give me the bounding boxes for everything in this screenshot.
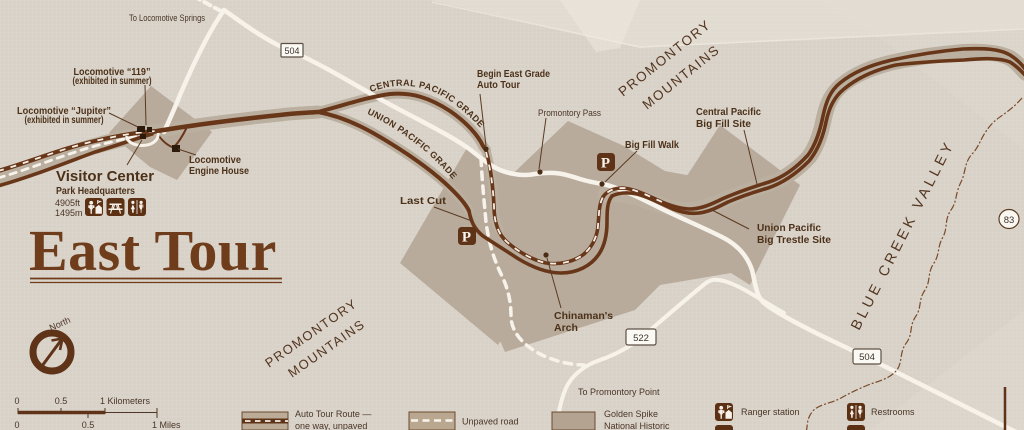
svg-text:Big Fill Site: Big Fill Site [696, 118, 751, 130]
svg-text:Park Headquarters: Park Headquarters [56, 186, 135, 197]
svg-text:1 Kilometers: 1 Kilometers [100, 396, 151, 406]
svg-text:0.5: 0.5 [82, 420, 95, 430]
svg-text:504: 504 [859, 352, 875, 363]
svg-text:Last Cut: Last Cut [400, 195, 447, 207]
svg-text:0: 0 [14, 396, 19, 406]
svg-text:Auto Tour Route —: Auto Tour Route — [295, 409, 371, 419]
svg-text:0: 0 [14, 420, 19, 430]
svg-text:one way, unpaved: one way, unpaved [295, 421, 367, 430]
svg-text:(exhibited in summer): (exhibited in summer) [73, 75, 152, 87]
svg-text:P: P [601, 156, 610, 172]
svg-text:National Historic: National Historic [604, 421, 670, 430]
svg-text:1495m: 1495m [55, 208, 83, 218]
svg-text:Visitor Center: Visitor Center [56, 168, 154, 185]
svg-text:East Tour: East Tour [29, 218, 277, 283]
svg-text:(exhibited in summer): (exhibited in summer) [25, 114, 104, 126]
svg-text:Chinaman's: Chinaman's [554, 310, 613, 322]
svg-text:0.5: 0.5 [55, 396, 68, 406]
svg-text:Golden Spike: Golden Spike [604, 409, 658, 419]
svg-text:To Locomotive Springs: To Locomotive Springs [129, 13, 205, 23]
svg-text:To Promontory Point: To Promontory Point [578, 387, 660, 397]
svg-text:Promontory Pass: Promontory Pass [538, 108, 601, 118]
svg-text:Unpaved road: Unpaved road [462, 417, 519, 427]
svg-text:522: 522 [633, 333, 649, 344]
svg-text:Big Trestle Site: Big Trestle Site [757, 234, 831, 246]
svg-text:1 Miles: 1 Miles [152, 420, 181, 430]
svg-text:Central Pacific: Central Pacific [696, 106, 761, 118]
svg-text:4905ft: 4905ft [55, 198, 81, 208]
svg-text:Engine House: Engine House [189, 165, 249, 177]
svg-text:Auto Tour: Auto Tour [477, 79, 520, 91]
svg-text:P: P [462, 230, 471, 246]
svg-text:Ranger station: Ranger station [741, 407, 800, 417]
svg-text:Big Fill Walk: Big Fill Walk [625, 139, 679, 151]
svg-text:Union Pacific: Union Pacific [757, 222, 821, 234]
svg-text:Restrooms: Restrooms [871, 407, 915, 417]
svg-text:504: 504 [284, 46, 299, 56]
svg-text:83: 83 [1004, 215, 1015, 226]
svg-text:Arch: Arch [554, 322, 578, 334]
